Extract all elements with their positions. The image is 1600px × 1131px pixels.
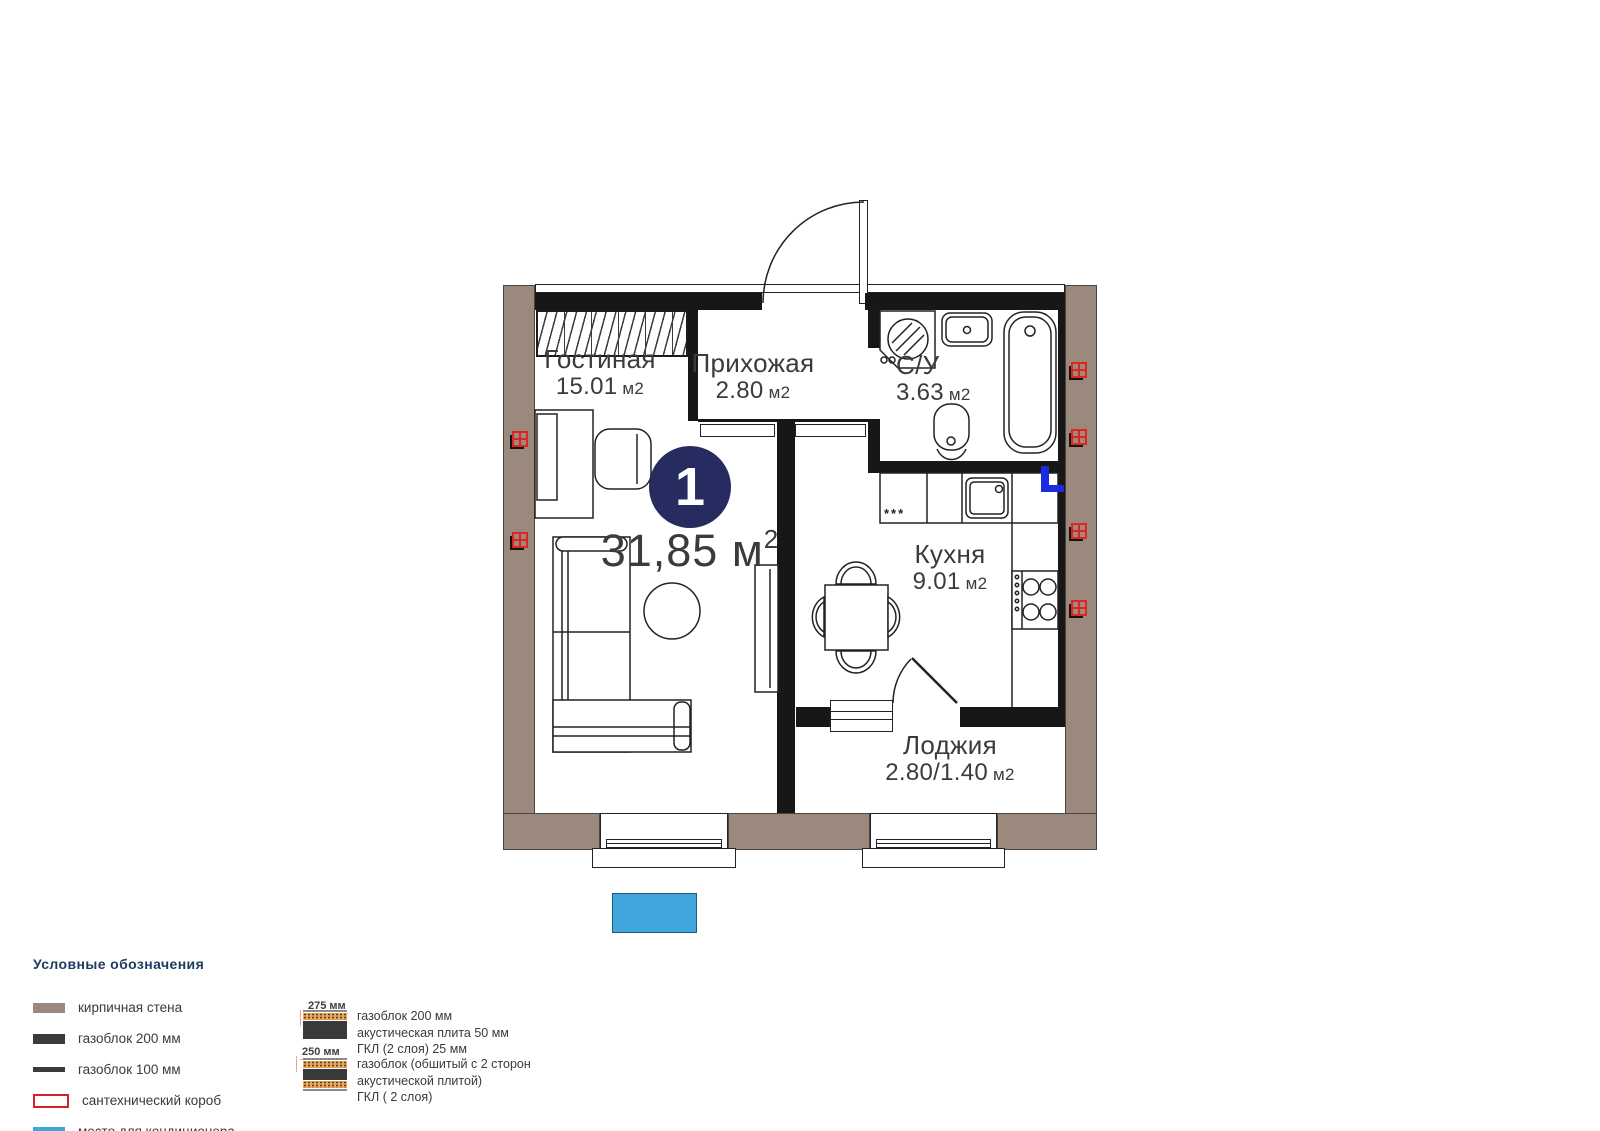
loggia-label: Лоджия 2.80/1.40м2	[862, 732, 1038, 788]
kitchen-label: Кухня 9.01м2	[880, 541, 1020, 597]
unit-number-badge: 1	[649, 446, 731, 528]
armchair	[595, 429, 651, 489]
plumbing-box-icon	[1071, 429, 1087, 445]
floor-plan-page: 1 31,85 м2 Гостиная 15.01м2 Прихожая 2.8…	[0, 0, 1600, 1131]
block200-swatch	[33, 1034, 65, 1044]
round-table	[644, 583, 700, 639]
legend: Условные обозначения кирпичная стена газ…	[33, 956, 293, 1131]
ac-swatch	[33, 1127, 65, 1131]
balcony-door-leaf	[912, 658, 957, 703]
kitchen-vent-stars: ***	[884, 506, 924, 521]
ac-place	[612, 893, 697, 933]
block100-swatch	[33, 1067, 65, 1072]
legend-title: Условные обозначения	[33, 956, 293, 972]
legend-item-plumbing: сантехнический короб	[33, 1093, 293, 1108]
total-area: 31,85 м2	[585, 524, 795, 577]
entrance-door-arc	[763, 202, 864, 303]
bathroom-label: С/У 3.63м2	[896, 352, 1016, 408]
cabinet-at-partition	[755, 565, 778, 692]
legend-item-block100: газоблок 100 мм	[33, 1062, 293, 1077]
tv-console	[535, 410, 593, 518]
plumbing-box-icon	[1071, 600, 1087, 616]
wall-section-250-text: газоблок (обшитый с 2 сторон акустическо…	[357, 1056, 531, 1106]
wall-section-275-text: газоблок 200 мм акустическая плита 50 мм…	[357, 1008, 509, 1058]
plumbing-box-icon	[512, 431, 528, 447]
plumbing-box-icon	[512, 532, 528, 548]
wall-section-275-swatch	[303, 1010, 347, 1039]
plumbing-swatch	[33, 1094, 69, 1108]
brick-swatch	[33, 1003, 65, 1013]
legend-item-brick: кирпичная стена	[33, 1000, 293, 1015]
toilet	[934, 404, 969, 460]
bathroom-sink	[942, 313, 992, 346]
plumbing-box-icon	[1071, 362, 1087, 378]
living-room-label: Гостиная 15.01м2	[520, 346, 680, 402]
plumbing-box-icon	[1071, 523, 1087, 539]
legend-item-block200: газоблок 200 мм	[33, 1031, 293, 1046]
hallway-label: Прихожая 2.80м2	[673, 350, 833, 406]
legend-item-ac: место для кондиционера	[33, 1124, 293, 1131]
wall-section-250-swatch	[303, 1058, 347, 1091]
ac-corner-marker	[1041, 466, 1064, 492]
balcony-door-arc	[893, 659, 911, 703]
unit-number: 1	[675, 456, 705, 518]
